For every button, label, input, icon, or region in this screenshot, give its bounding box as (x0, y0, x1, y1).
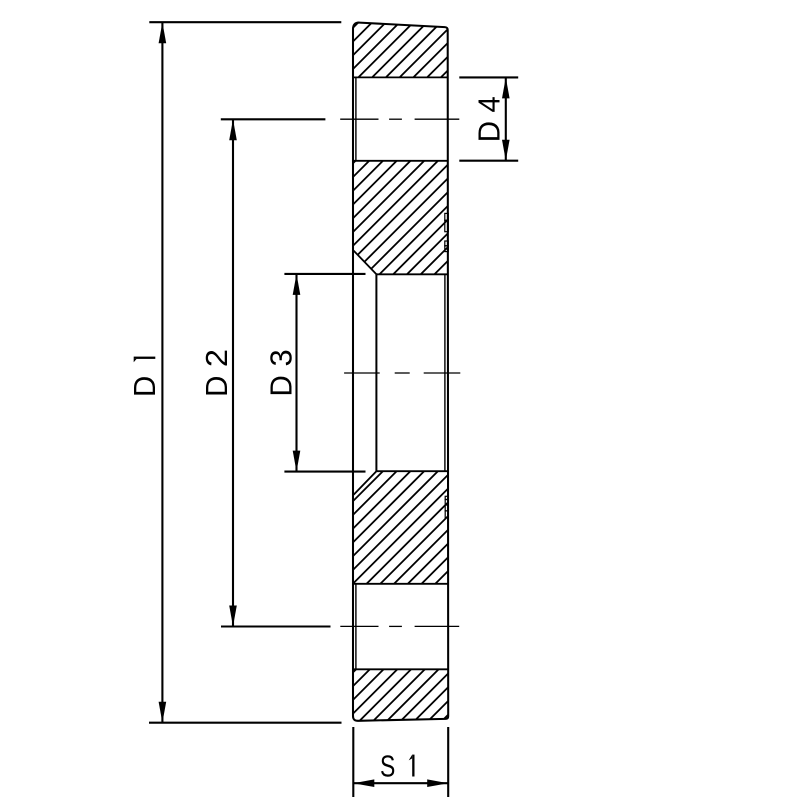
svg-text:2: 2 (199, 349, 234, 367)
svg-text:D: D (264, 375, 299, 396)
svg-text:S: S (380, 748, 395, 783)
svg-text:D: D (127, 376, 162, 397)
svg-text:4: 4 (473, 96, 507, 112)
svg-text:3: 3 (263, 349, 298, 366)
svg-text:D: D (199, 375, 234, 396)
svg-text:D: D (472, 121, 507, 142)
